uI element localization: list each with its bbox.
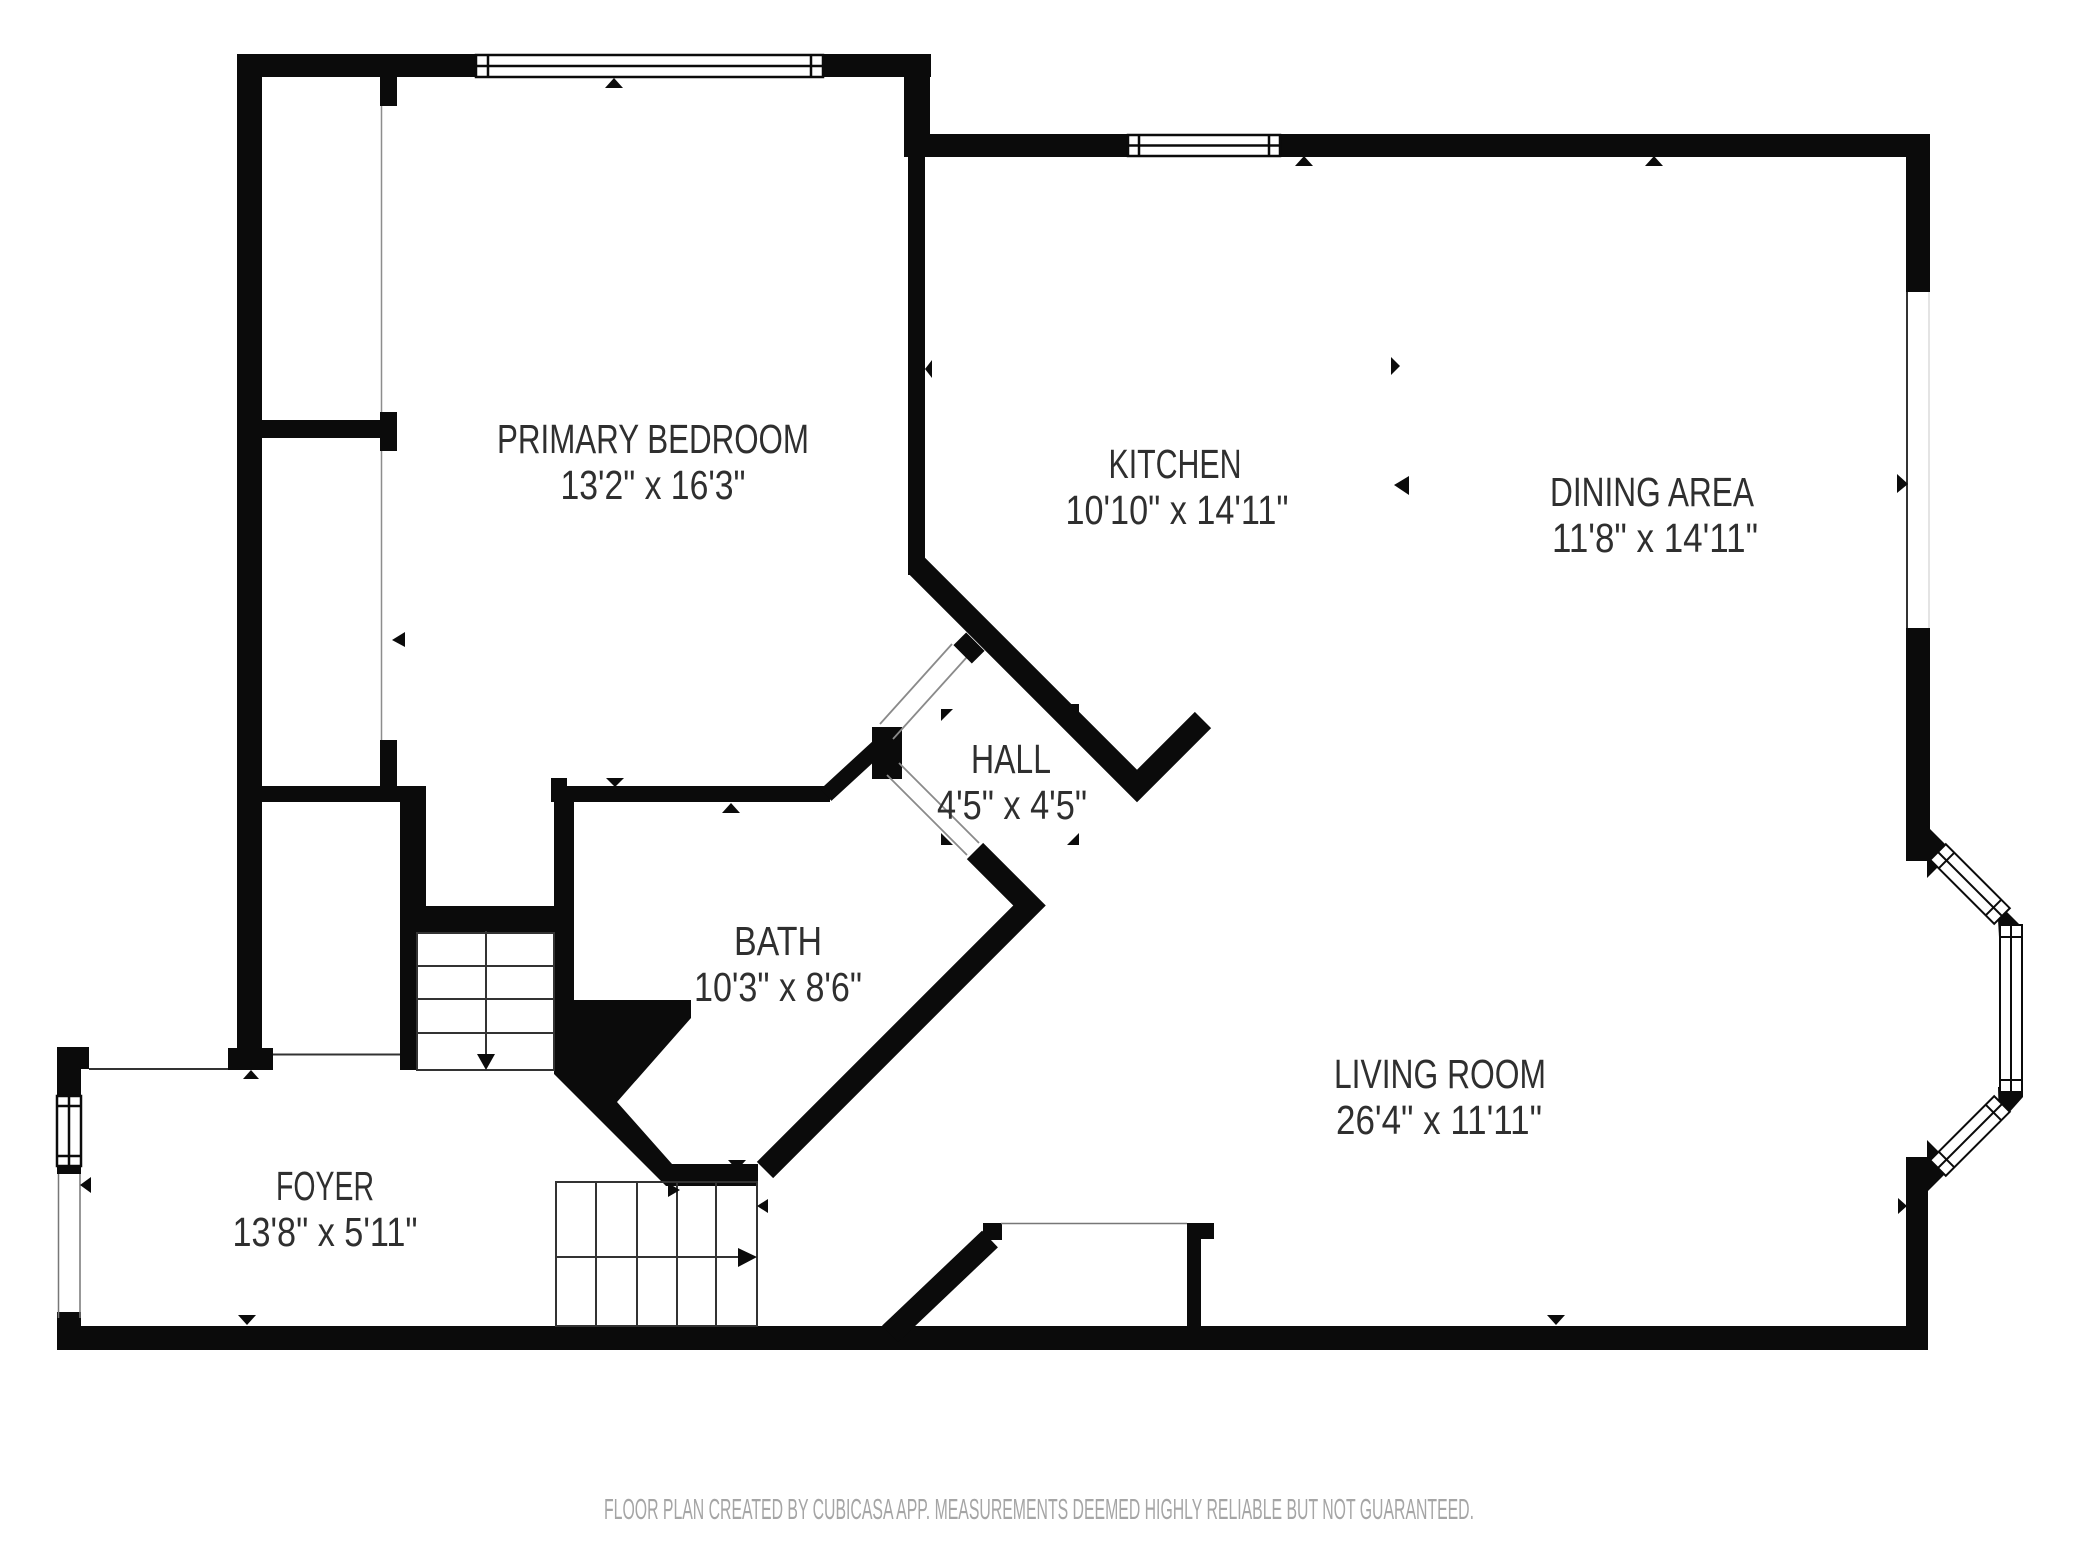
- svg-text:26'4" x 11'11": 26'4" x 11'11": [1336, 1097, 1542, 1143]
- svg-text:PRIMARY BEDROOM: PRIMARY BEDROOM: [497, 416, 809, 462]
- svg-text:11'8" x 14'11": 11'8" x 14'11": [1552, 515, 1758, 561]
- svg-text:DINING AREA: DINING AREA: [1550, 469, 1755, 515]
- svg-text:10'10" x 14'11": 10'10" x 14'11": [1066, 487, 1289, 533]
- svg-text:BATH: BATH: [734, 918, 822, 964]
- svg-text:4'5" x 4'5": 4'5" x 4'5": [937, 782, 1087, 828]
- svg-text:KITCHEN: KITCHEN: [1109, 441, 1242, 487]
- svg-text:HALL: HALL: [971, 736, 1051, 782]
- svg-text:10'3" x 8'6": 10'3" x 8'6": [694, 964, 862, 1010]
- svg-text:13'8" x 5'11": 13'8" x 5'11": [233, 1209, 418, 1255]
- svg-text:FLOOR PLAN CREATED BY CUBICASA: FLOOR PLAN CREATED BY CUBICASA APP. MEAS…: [604, 1494, 1474, 1526]
- svg-text:13'2" x 16'3": 13'2" x 16'3": [561, 462, 746, 508]
- svg-text:FOYER: FOYER: [276, 1163, 374, 1209]
- svg-text:LIVING ROOM: LIVING ROOM: [1334, 1051, 1546, 1097]
